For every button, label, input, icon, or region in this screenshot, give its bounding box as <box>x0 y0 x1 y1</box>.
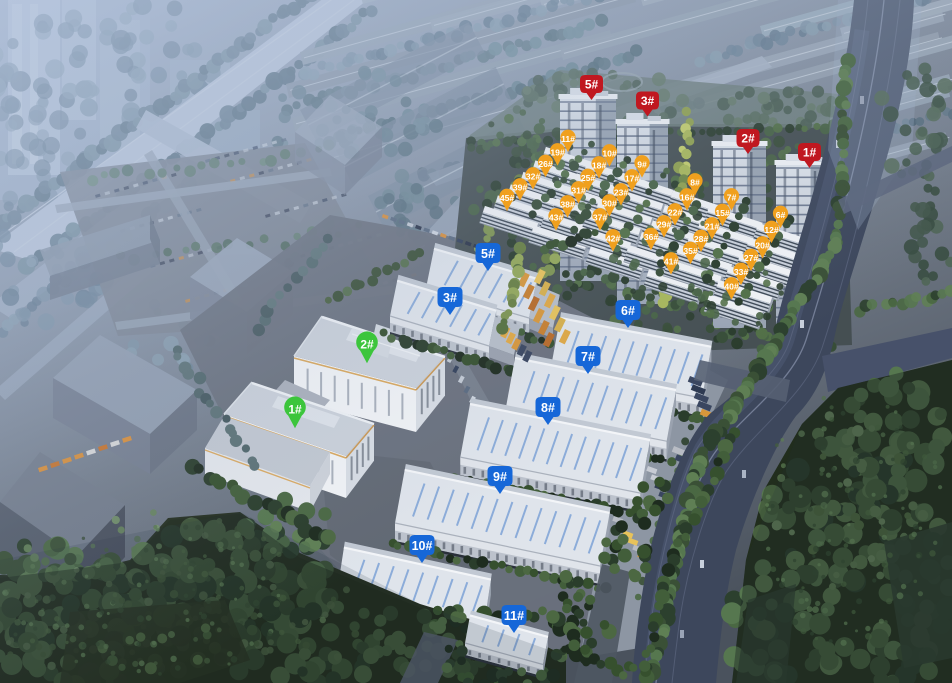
svg-text:41#: 41# <box>664 257 679 267</box>
svg-text:30#: 30# <box>602 199 617 209</box>
svg-text:5#: 5# <box>481 247 495 261</box>
svg-text:25#: 25# <box>581 173 596 183</box>
svg-text:36#: 36# <box>644 232 659 242</box>
svg-text:9#: 9# <box>637 160 647 170</box>
svg-text:43#: 43# <box>549 213 564 223</box>
svg-text:35#: 35# <box>683 246 698 256</box>
svg-text:32#: 32# <box>526 172 541 182</box>
svg-text:38#: 38# <box>560 200 575 210</box>
svg-text:39#: 39# <box>513 183 528 193</box>
svg-text:6#: 6# <box>621 304 635 318</box>
svg-text:10#: 10# <box>412 539 433 553</box>
svg-text:33#: 33# <box>734 267 749 277</box>
svg-text:9#: 9# <box>493 470 507 484</box>
svg-text:45#: 45# <box>500 193 515 203</box>
svg-text:11#: 11# <box>561 134 575 144</box>
svg-text:17#: 17# <box>625 174 640 184</box>
svg-text:26#: 26# <box>538 159 553 169</box>
svg-text:2#: 2# <box>741 132 755 146</box>
svg-text:40#: 40# <box>724 282 739 292</box>
svg-text:7#: 7# <box>581 350 595 364</box>
svg-text:1#: 1# <box>288 403 302 417</box>
svg-text:19#: 19# <box>550 148 565 158</box>
svg-text:22#: 22# <box>668 208 683 218</box>
svg-text:29#: 29# <box>657 220 672 230</box>
svg-text:15#: 15# <box>715 208 730 218</box>
svg-text:27#: 27# <box>744 253 759 263</box>
svg-text:6#: 6# <box>776 210 786 220</box>
svg-text:20#: 20# <box>755 241 770 251</box>
svg-text:18#: 18# <box>592 161 607 171</box>
svg-text:10#: 10# <box>602 149 617 159</box>
svg-text:3#: 3# <box>443 291 457 305</box>
svg-text:37#: 37# <box>593 213 608 223</box>
svg-text:5#: 5# <box>585 78 599 92</box>
svg-text:2#: 2# <box>360 338 374 352</box>
svg-text:8#: 8# <box>690 178 700 188</box>
svg-text:21#: 21# <box>705 222 720 232</box>
svg-text:3#: 3# <box>641 94 655 108</box>
svg-text:7#: 7# <box>727 193 737 203</box>
svg-text:31#: 31# <box>571 186 586 196</box>
svg-text:42#: 42# <box>606 234 621 244</box>
svg-text:28#: 28# <box>694 234 709 244</box>
svg-text:8#: 8# <box>541 401 555 415</box>
svg-text:23#: 23# <box>614 188 629 198</box>
svg-text:16#: 16# <box>680 193 695 203</box>
svg-text:12#: 12# <box>764 225 779 235</box>
svg-text:1#: 1# <box>803 146 817 160</box>
svg-text:11#: 11# <box>504 609 524 623</box>
